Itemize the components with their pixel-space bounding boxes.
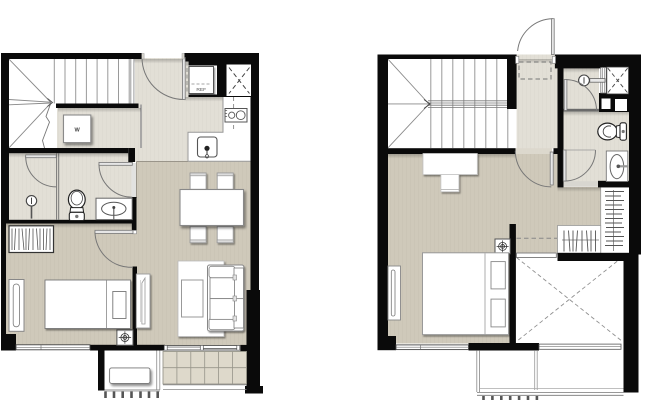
svg-text:REF: REF (196, 87, 206, 93)
svg-text:W: W (75, 127, 81, 133)
